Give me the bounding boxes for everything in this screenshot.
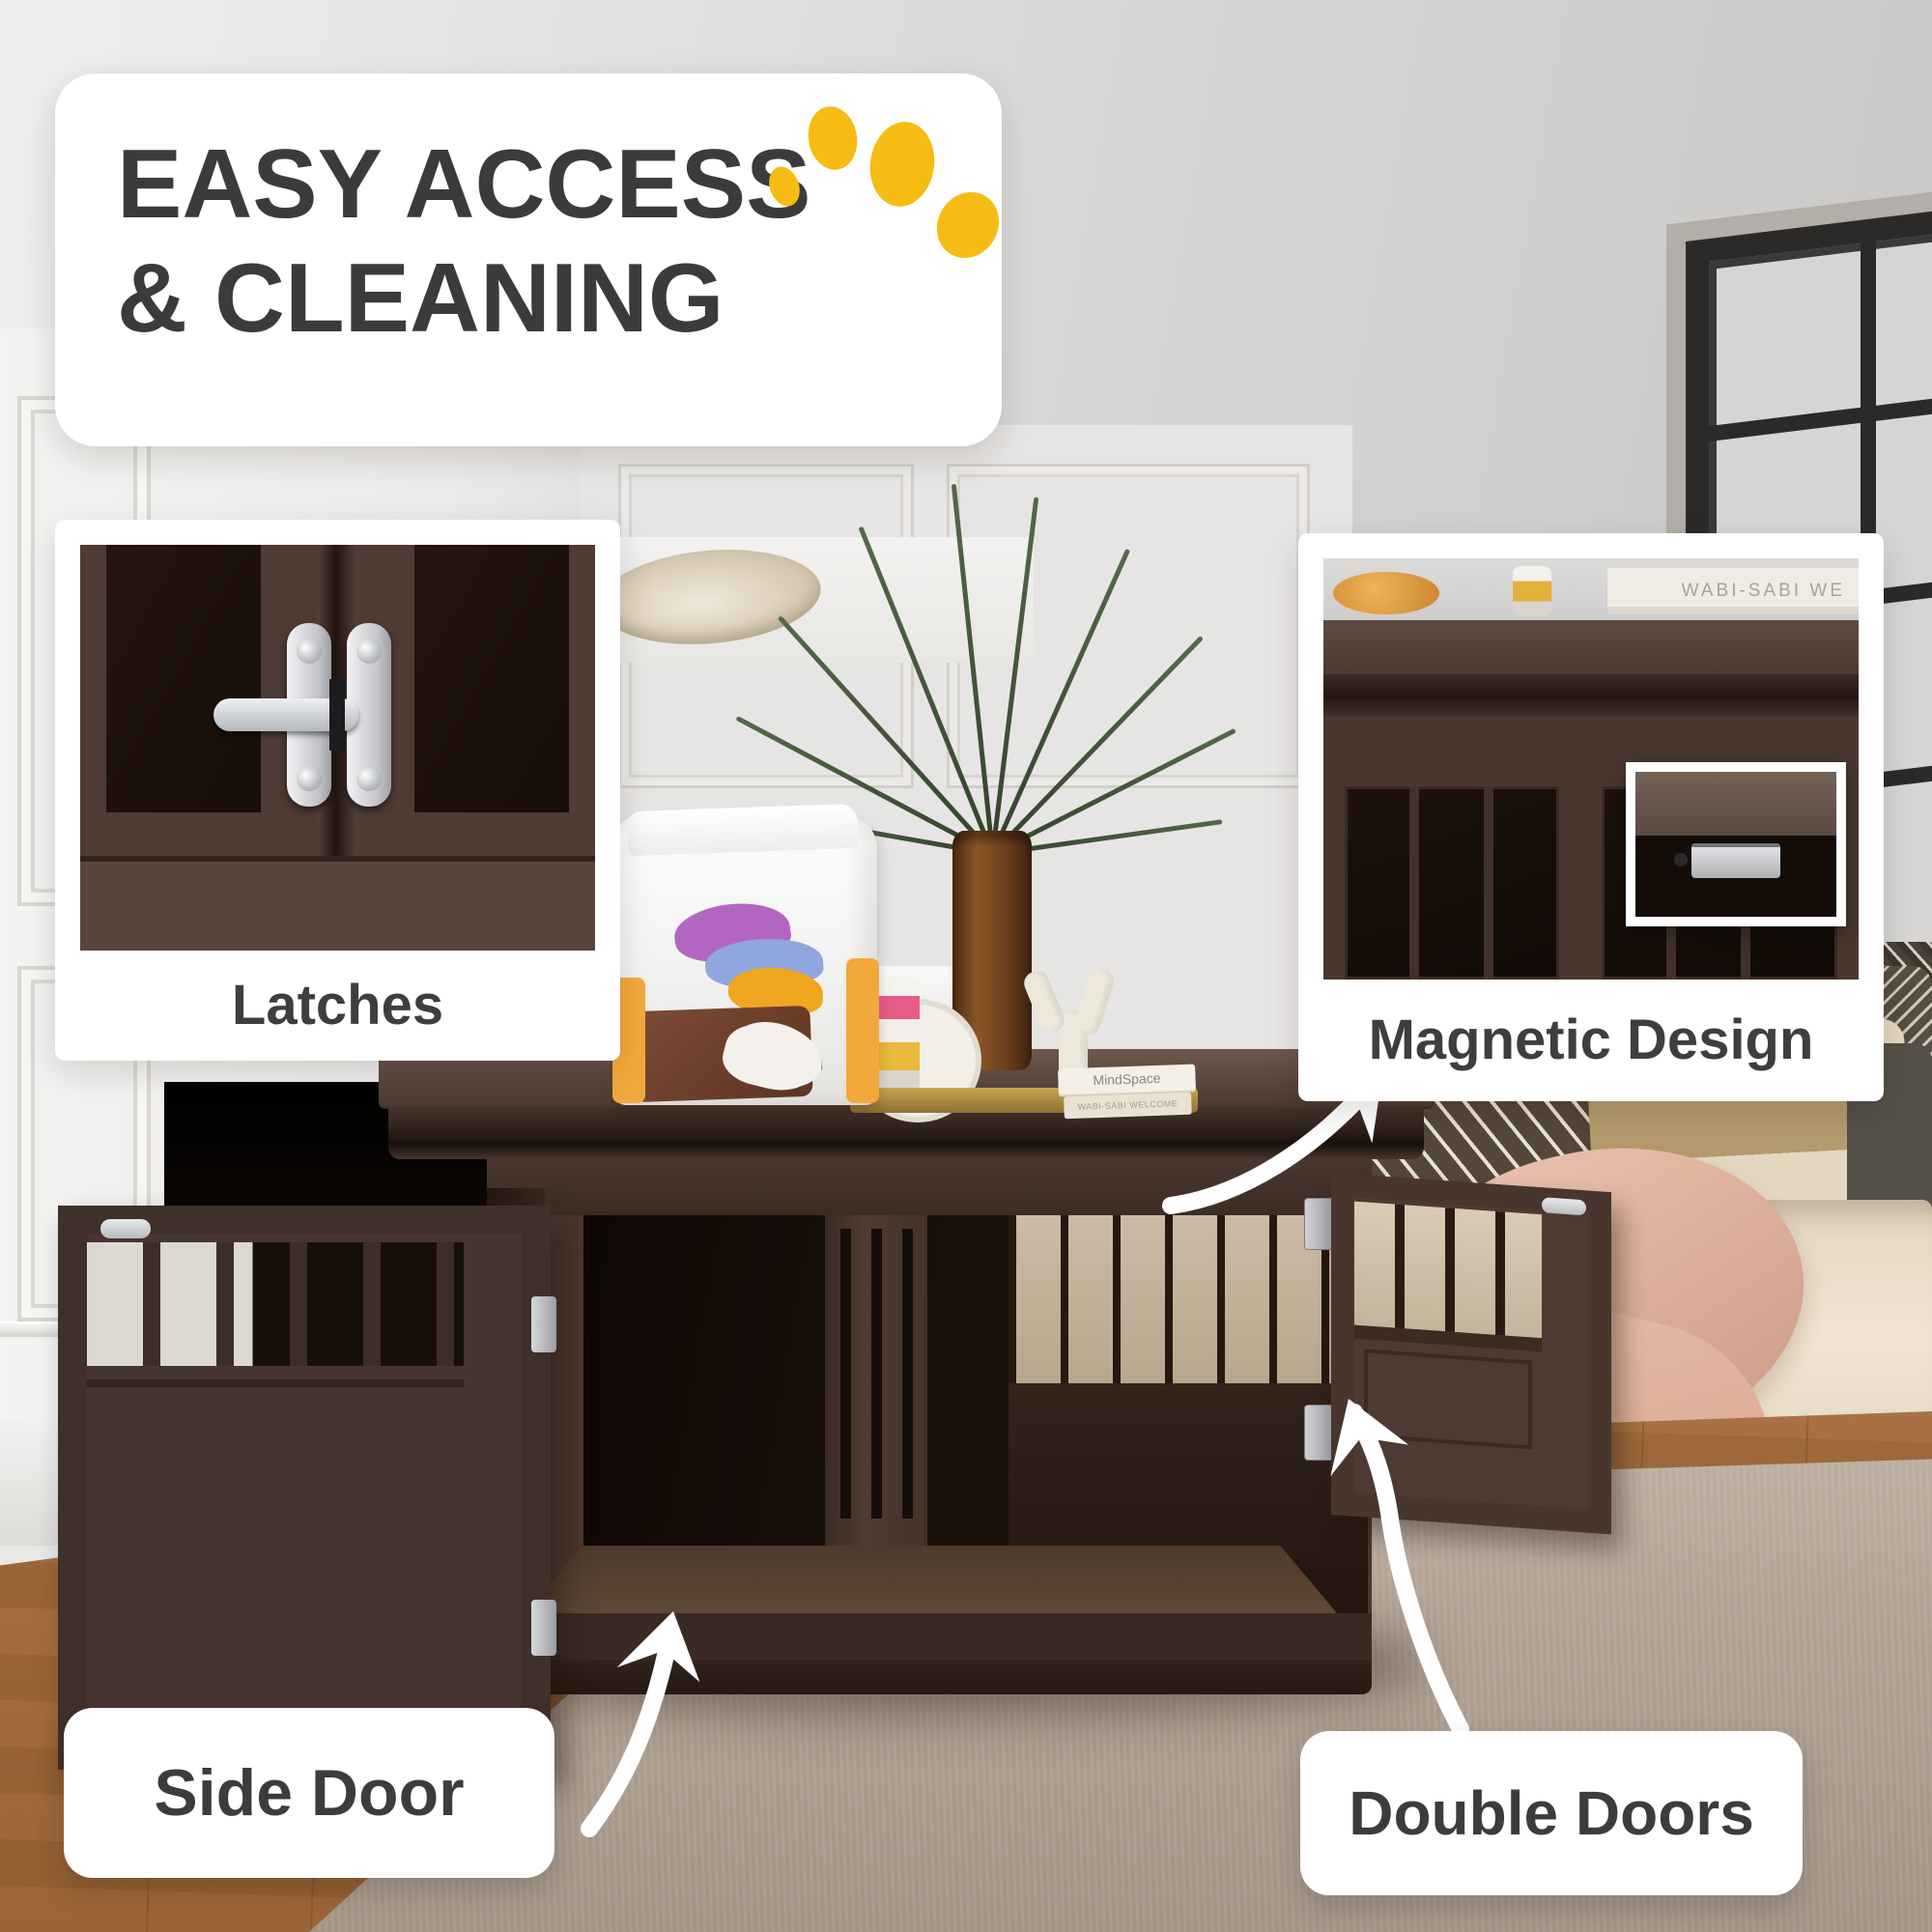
bag-orange-band xyxy=(846,958,879,1103)
door-panel xyxy=(1345,786,1559,980)
decor-can xyxy=(1513,566,1551,616)
window-muntin xyxy=(1709,387,1932,442)
crate-interior-floor xyxy=(526,1546,1337,1613)
crate-bottom-rail xyxy=(487,1613,1372,1662)
bag-flap xyxy=(627,804,858,856)
magnetic-photo: WABI-SABI WE xyxy=(1323,558,1859,980)
page-title: EASY ACCESS & CLEANING xyxy=(55,73,1002,355)
open-front-door xyxy=(1331,1173,1611,1534)
door-bottom-rail xyxy=(80,862,595,951)
book-stack: MindSpace WABI-SABI WELCOME xyxy=(1058,1065,1197,1123)
latch-hardware xyxy=(246,623,430,807)
vase-arm xyxy=(1021,968,1068,1037)
door-slat xyxy=(1409,786,1419,980)
product-infographic-scene: New generation of natural MindSpace WABI… xyxy=(0,0,1932,1932)
crate-beam xyxy=(1635,772,1836,836)
door-window xyxy=(414,545,569,812)
door-window xyxy=(106,545,261,812)
crate-top-molding xyxy=(1323,674,1859,717)
dog-food-bag: New generation of natural xyxy=(614,815,877,1105)
title-line-2: & CLEANING xyxy=(117,244,724,353)
latches-callout-card: Latches xyxy=(55,520,620,1061)
side-door-label-pill: Side Door xyxy=(64,1708,554,1878)
side-door-panel-line xyxy=(87,1379,464,1387)
book-spine: WABI-SABI WE xyxy=(1607,568,1859,614)
open-side-door xyxy=(58,1206,551,1770)
magnet-closeup-inset xyxy=(1626,762,1846,926)
front-door-latch-plate xyxy=(1542,1197,1586,1215)
book-spine: MindSpace xyxy=(1058,1065,1196,1095)
crate-tabletop xyxy=(1323,620,1859,674)
post-slat-gap xyxy=(902,1229,913,1519)
latches-photo xyxy=(80,545,595,951)
magnetic-catch xyxy=(1691,843,1780,878)
double-doors-label-pill: Double Doors xyxy=(1300,1731,1803,1895)
door-hinge xyxy=(531,1600,556,1656)
white-branch-vase xyxy=(1024,970,1117,1082)
post-slat-gap xyxy=(840,1229,851,1519)
front-door-lower-panel xyxy=(1364,1349,1532,1449)
magnetic-label: Magnetic Design xyxy=(1298,980,1884,1101)
book-spine: WABI-SABI WELCOME xyxy=(1064,1093,1192,1120)
door-slat xyxy=(1484,786,1493,980)
post-slat-gap xyxy=(871,1229,882,1519)
decor-bread xyxy=(1333,572,1439,614)
crate-front xyxy=(487,1159,1372,1662)
latches-label: Latches xyxy=(55,951,620,1061)
title-card: EASY ACCESS & CLEANING xyxy=(55,73,1002,446)
title-line-1: EASY ACCESS xyxy=(117,130,810,239)
front-door-bars xyxy=(1354,1202,1542,1339)
magnetic-callout-card: WABI-SABI WE Magnetic Design xyxy=(1298,533,1884,1101)
door-hinge xyxy=(531,1296,556,1352)
side-door-latch-plate xyxy=(100,1219,151,1238)
vase-arm xyxy=(1072,966,1117,1038)
crate-top-rail xyxy=(487,1159,1372,1215)
crate-base-plinth xyxy=(502,1660,1372,1694)
palm-frond xyxy=(991,636,1204,856)
palm-plant xyxy=(683,454,1301,860)
side-door-bars xyxy=(87,1242,464,1366)
